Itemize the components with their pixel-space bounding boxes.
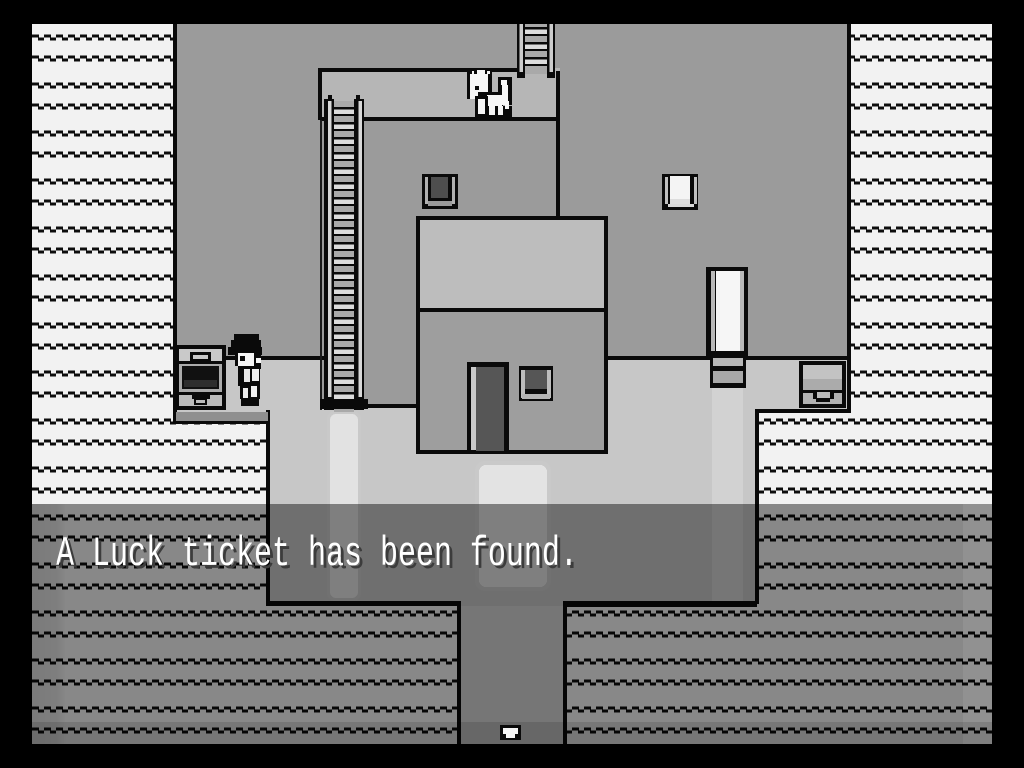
svg-text:A Luck ticket has been found.: A Luck ticket has been found. [56, 531, 578, 578]
